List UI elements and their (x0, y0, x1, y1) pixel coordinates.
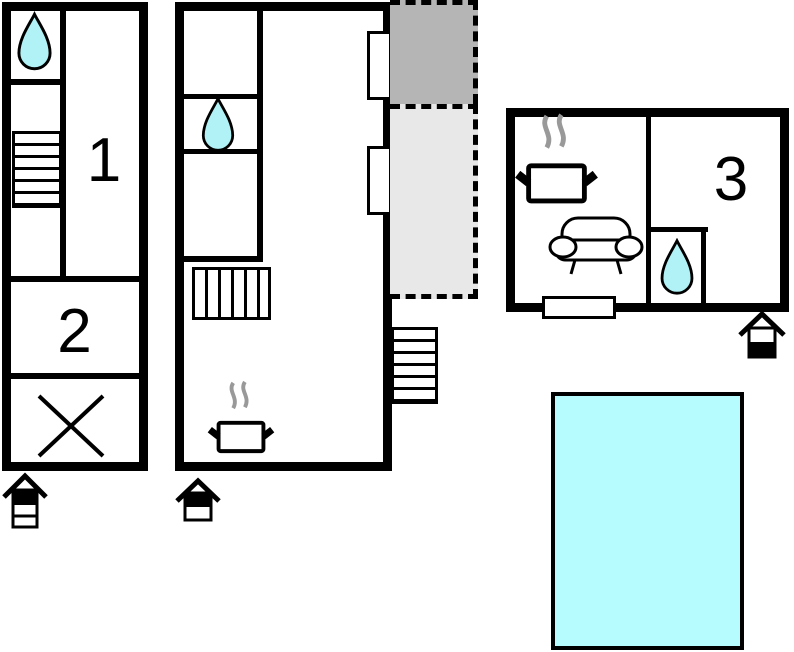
water-drop-icon (200, 96, 236, 153)
sofa-icon (547, 215, 645, 277)
room-2-label: 2 (9, 298, 140, 366)
cross-icon (36, 393, 106, 459)
cooking-pot-icon (202, 378, 280, 456)
terrace-area-lower (390, 104, 478, 299)
steam-icon (545, 116, 549, 148)
entrance-icon (1, 471, 49, 529)
terrace-area-upper (390, 0, 478, 104)
room-3-label: 3 (700, 145, 762, 215)
window-marker (367, 31, 392, 100)
room-1-label: 1 (68, 127, 140, 195)
wall (9, 276, 141, 282)
wall (646, 117, 651, 303)
steam-icon (232, 383, 235, 408)
wall (257, 9, 263, 261)
entrance-icon (174, 477, 222, 522)
wall (701, 227, 706, 305)
wall (9, 79, 62, 85)
stairs-icon (391, 327, 438, 404)
steam-icon (559, 115, 563, 147)
entrance-icon (738, 311, 786, 359)
wall (9, 373, 141, 379)
water-drop-icon (659, 238, 695, 296)
wall (184, 256, 263, 262)
pool-area (551, 392, 744, 650)
water-drop-icon (16, 11, 53, 72)
floor-plan: 1 2 (0, 0, 794, 652)
window-marker (367, 146, 392, 215)
cooking-pot-icon (508, 110, 605, 207)
window-marker (542, 296, 616, 319)
steam-icon (243, 382, 246, 407)
stairs-icon (192, 267, 271, 320)
stairs-icon (12, 131, 62, 208)
wall (650, 227, 708, 232)
